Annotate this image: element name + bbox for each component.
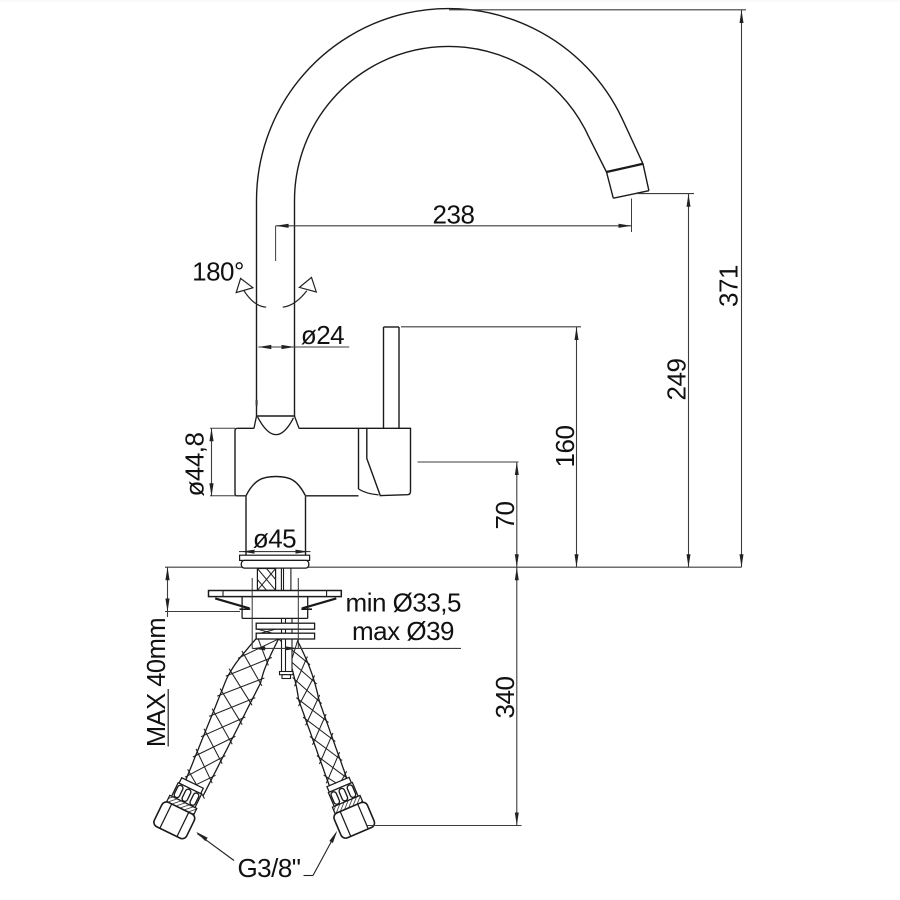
- svg-text:340: 340: [490, 677, 520, 719]
- svg-text:max Ø39: max Ø39: [352, 616, 454, 646]
- svg-text:70: 70: [490, 502, 520, 530]
- svg-text:ø45: ø45: [253, 524, 296, 554]
- svg-text:ø24: ø24: [301, 320, 344, 350]
- svg-text:249: 249: [661, 359, 691, 401]
- svg-text:160: 160: [550, 426, 580, 468]
- svg-text:371: 371: [713, 265, 743, 307]
- svg-text:min Ø33,5: min Ø33,5: [346, 588, 461, 618]
- svg-text:ø44,8: ø44,8: [180, 432, 210, 496]
- svg-text:238: 238: [433, 200, 475, 230]
- svg-text:MAX 40mm: MAX 40mm: [143, 618, 171, 747]
- svg-text:G3/8": G3/8": [237, 853, 300, 883]
- svg-text:180°: 180°: [192, 257, 244, 287]
